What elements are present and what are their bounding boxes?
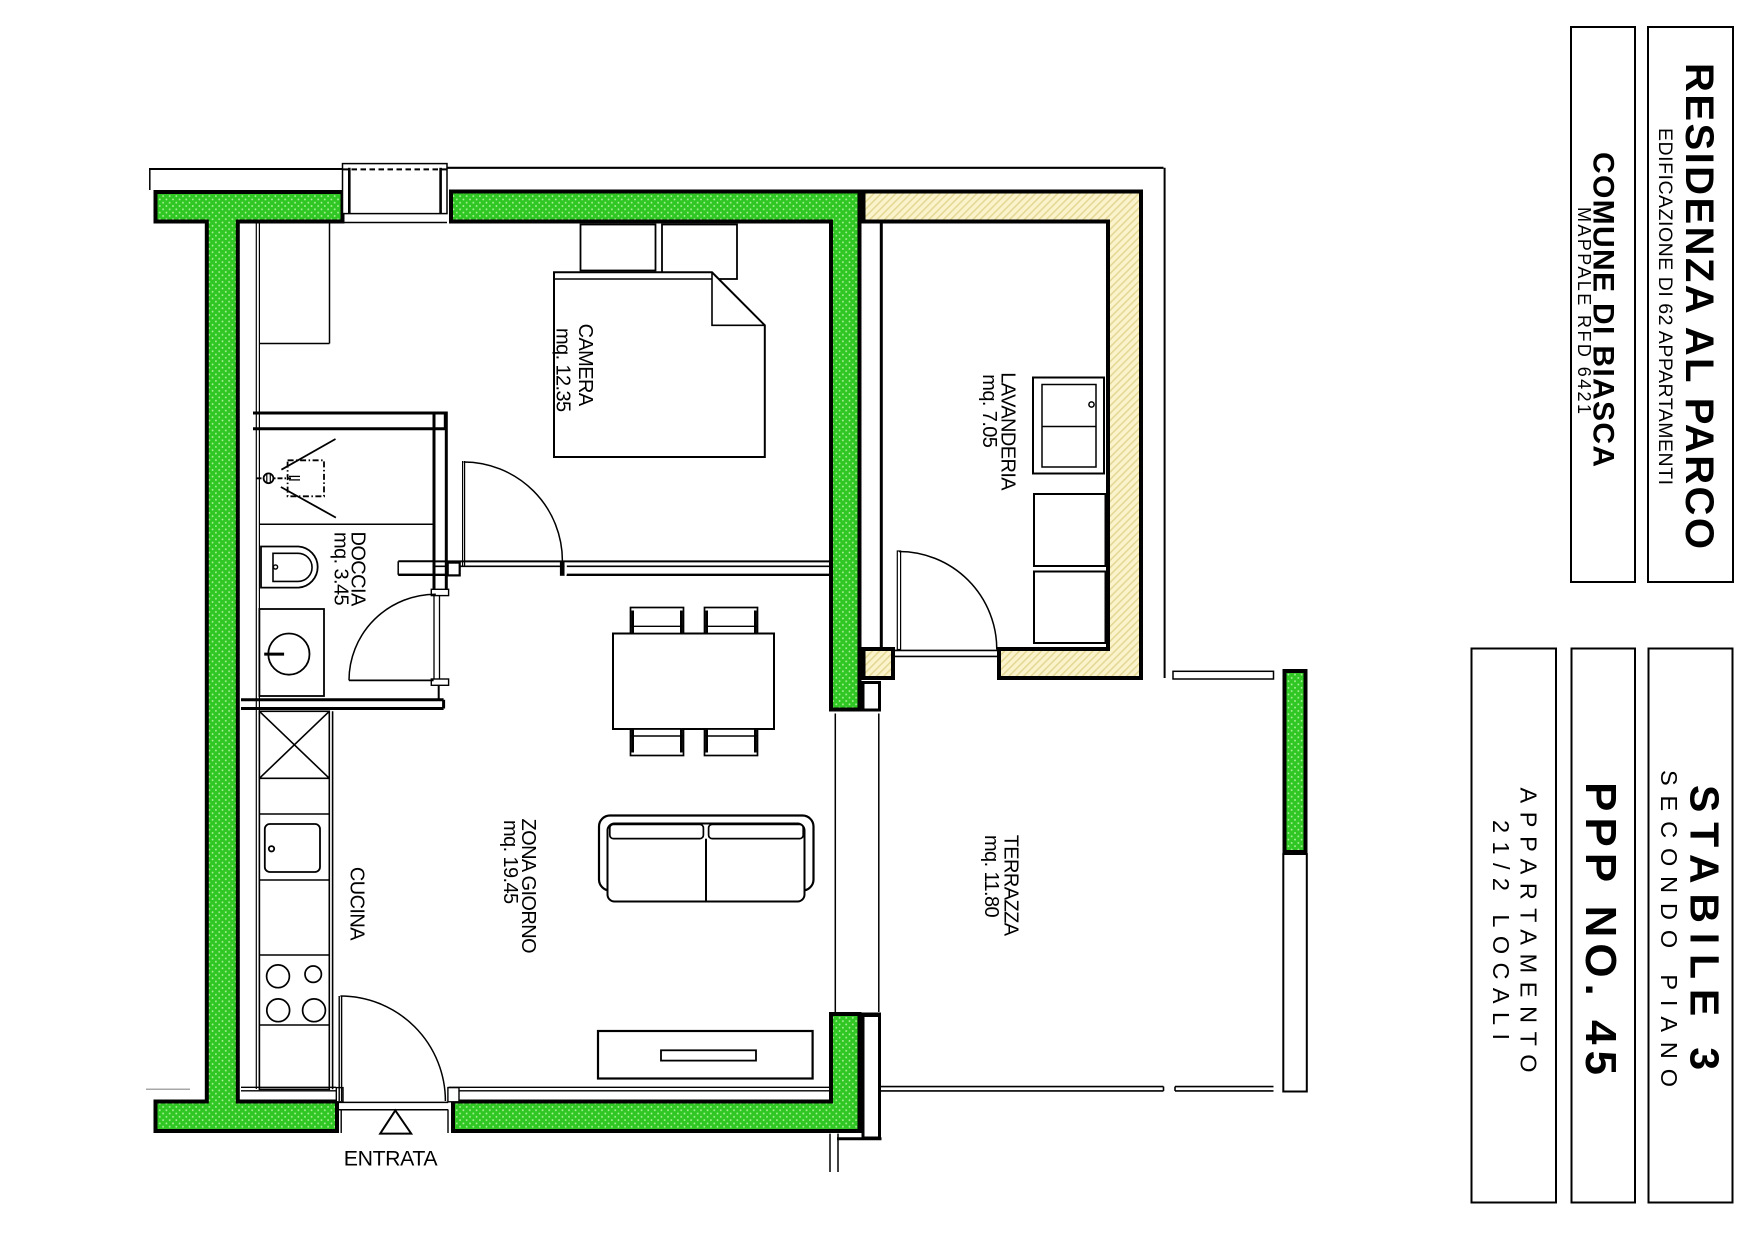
svg-text:mq. 11.80: mq. 11.80 (980, 835, 1002, 918)
svg-text:PPP NO. 45: PPP NO. 45 (1576, 782, 1625, 1075)
svg-text:EDIFICAZIONE DI 62 APPARTAMENT: EDIFICAZIONE DI 62 APPARTAMENTI (1654, 128, 1676, 485)
svg-text:mq. 12.35: mq. 12.35 (551, 328, 573, 412)
svg-text:ENTRATA: ENTRATA (344, 1147, 439, 1171)
svg-text:MAPPALE RFD 6421: MAPPALE RFD 6421 (1574, 207, 1594, 414)
svg-text:mq. 7.05: mq. 7.05 (978, 374, 1000, 447)
svg-text:RESIDENZA AL PARCO: RESIDENZA AL PARCO (1677, 63, 1721, 549)
svg-text:CAMERA: CAMERA (574, 324, 596, 407)
svg-text:TERRAZZA: TERRAZZA (1000, 835, 1022, 937)
svg-text:mq. 3.45: mq. 3.45 (330, 532, 352, 605)
svg-text:CUCINA: CUCINA (346, 867, 368, 941)
svg-text:mq. 19.45: mq. 19.45 (499, 820, 521, 904)
